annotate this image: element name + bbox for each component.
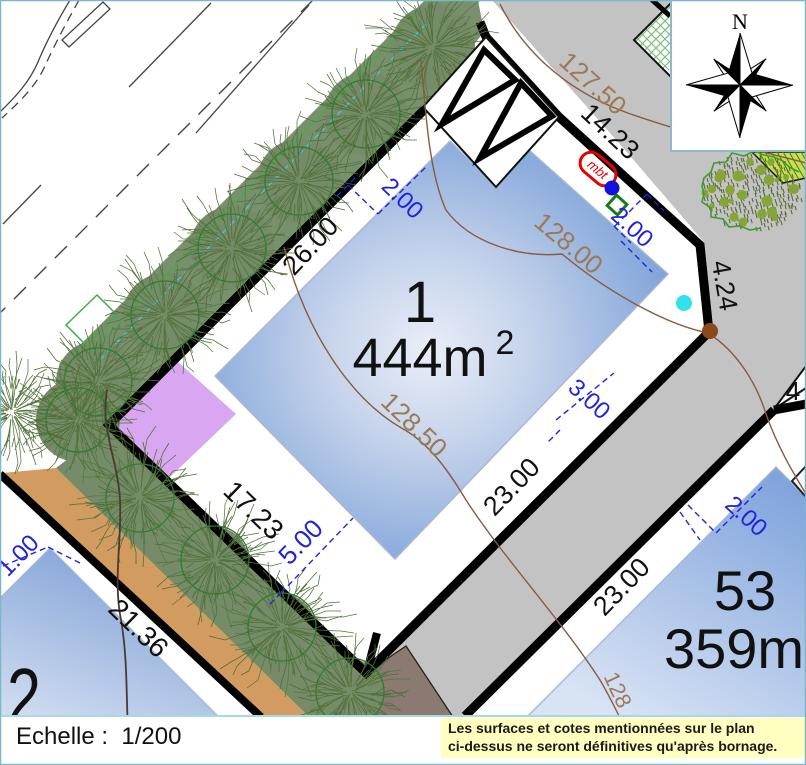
svg-text:ci-dessus ne seront définitive: ci-dessus ne seront définitives qu'après… <box>448 738 777 754</box>
svg-text:444m: 444m <box>352 328 487 388</box>
svg-text:4: 4 <box>786 376 800 406</box>
svg-text:N: N <box>732 9 748 34</box>
svg-text:Echelle : 1/200: Echelle : 1/200 <box>16 723 181 750</box>
svg-text:Les surfaces et cotes mentionn: Les surfaces et cotes mentionnées sur le… <box>448 720 755 736</box>
svg-text:53: 53 <box>714 559 776 622</box>
svg-text:1: 1 <box>404 270 436 335</box>
svg-text:359m²: 359m² <box>664 617 806 680</box>
svg-text:2: 2 <box>496 324 515 362</box>
